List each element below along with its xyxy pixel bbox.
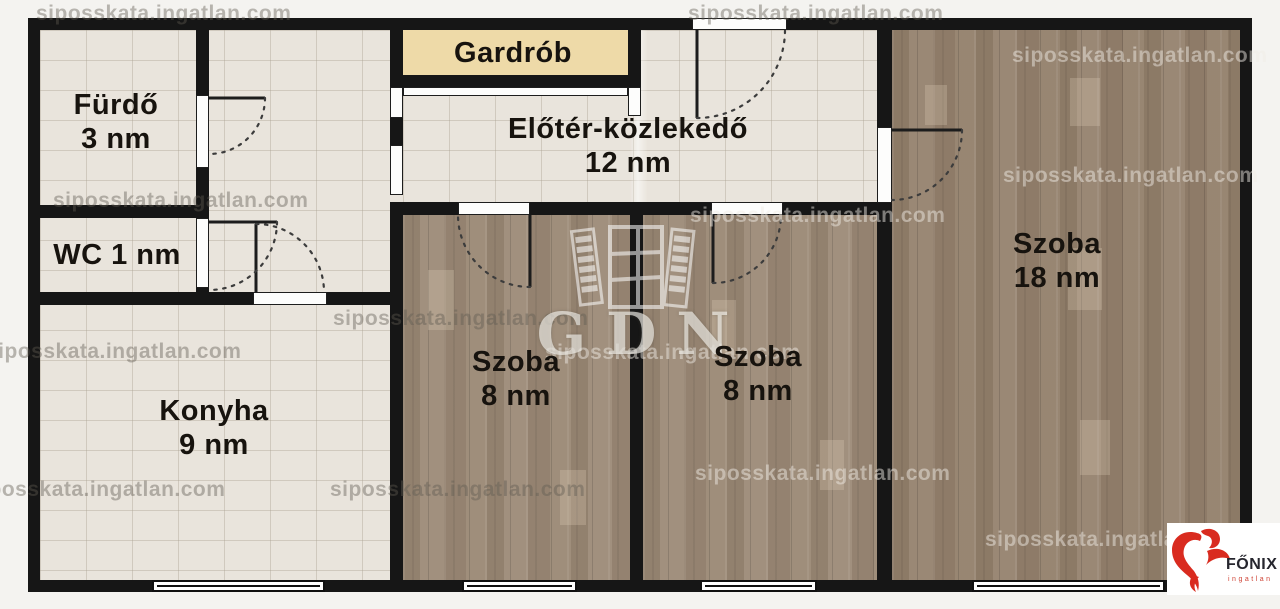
agency-logo-sub: ingatlan: [1228, 576, 1273, 583]
room-area: 3 nm: [74, 122, 159, 156]
room-label-eloter: Előtér-közlekedő 12 nm: [508, 112, 748, 180]
gdn-logo-icon: [563, 222, 703, 312]
watermark-text: siposskata.ingatlan.com: [36, 2, 291, 26]
room-label-furdo: Fürdő 3 nm: [74, 88, 159, 156]
watermark-text: siposskata.ingatlan.com: [330, 478, 585, 502]
room-area: 18 nm: [1013, 261, 1101, 295]
room-area: 12 nm: [508, 146, 748, 180]
watermark-text: siposskata.ingatlan.com: [1012, 44, 1267, 68]
room-area: 8 nm: [714, 374, 802, 408]
phoenix-icon: [1167, 525, 1231, 593]
room-name: Szoba: [714, 340, 802, 374]
room-name: Konyha: [159, 394, 268, 428]
watermark-text: siposskata.ingatlan.com: [1003, 164, 1258, 188]
room-name: Gardrób: [454, 36, 572, 70]
room-area: 8 nm: [472, 379, 560, 413]
agency-logo: FŐNIX ingatlan: [1167, 523, 1280, 595]
watermark-text: siposskata.ingatlan.com: [0, 340, 241, 364]
watermark-text: siposskata.ingatlan.com: [0, 478, 225, 502]
room-label-szoba1: Szoba 8 nm: [472, 345, 560, 413]
floorplan: Fürdő 3 nm WC 1 nm Konyha 9 nm Gardrób E…: [0, 0, 1280, 609]
room-name: Szoba: [1013, 227, 1101, 261]
room-label-gardrob: Gardrób: [454, 36, 572, 70]
room-label-szoba2: Szoba 8 nm: [714, 340, 802, 408]
agency-logo-brand: FŐNIX: [1226, 556, 1277, 574]
room-name: Fürdő: [74, 88, 159, 122]
room-label-szoba18: Szoba 18 nm: [1013, 227, 1101, 295]
room-label-wc: WC 1 nm: [53, 238, 181, 272]
room-name: Szoba: [472, 345, 560, 379]
watermark-text: siposskata.ingatlan.com: [53, 189, 308, 213]
watermark-text: siposskata.ingatlan.com: [695, 462, 950, 486]
room-name: Előtér-közlekedő: [508, 112, 748, 146]
room-name: WC 1 nm: [53, 238, 181, 272]
watermark-text: siposskata.ingatlan.com: [690, 204, 945, 228]
room-area: 9 nm: [159, 428, 268, 462]
watermark-text: siposskata.ingatlan.com: [688, 2, 943, 26]
room-label-konyha: Konyha 9 nm: [159, 394, 268, 462]
